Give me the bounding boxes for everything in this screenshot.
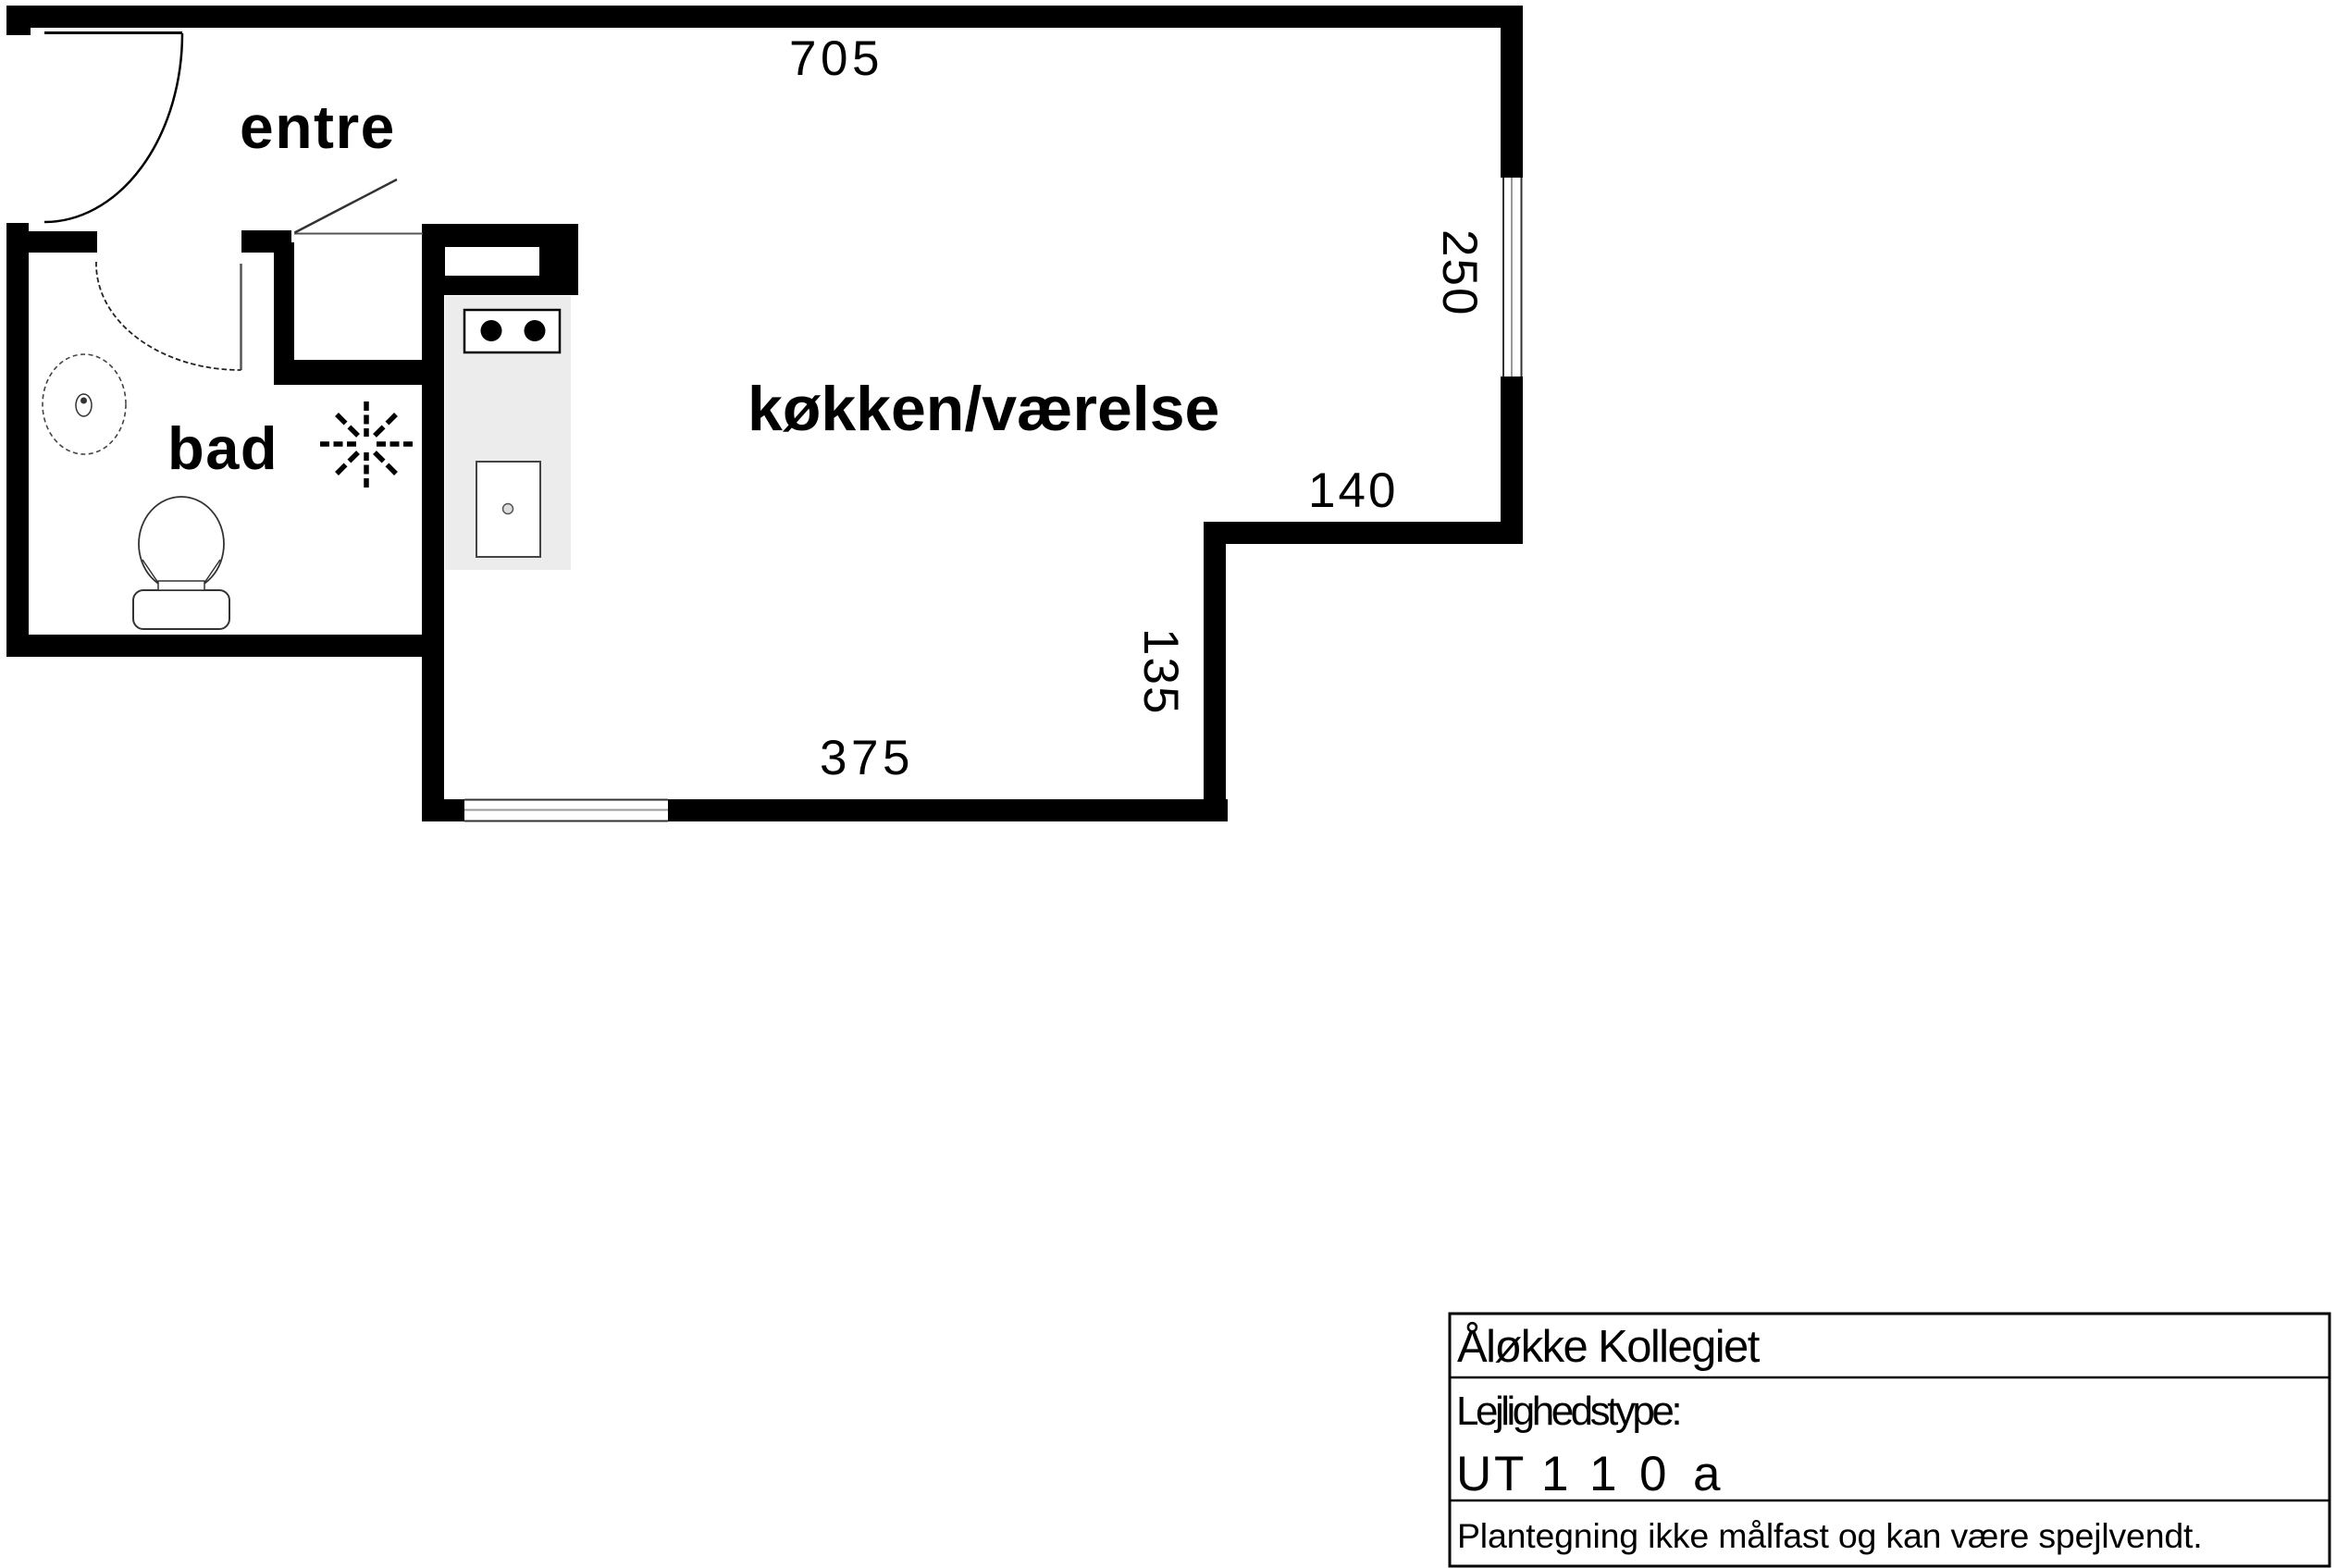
svg-text:køkken/værelse: køkken/værelse: [748, 374, 1219, 444]
svg-text:140: 140: [1308, 463, 1398, 518]
svg-text:Åløkke Kollegiet: Åløkke Kollegiet: [1457, 1322, 1761, 1372]
svg-text:Lejlighedstype:: Lejlighedstype:: [1456, 1389, 1679, 1434]
svg-text:bad: bad: [167, 414, 278, 482]
svg-text:375: 375: [820, 731, 914, 785]
svg-text:entre: entre: [240, 93, 396, 161]
svg-text:250: 250: [1432, 229, 1487, 316]
svg-text:705: 705: [789, 31, 884, 86]
svg-text:Plantegning ikke målfast og ka: Plantegning ikke målfast og kan være spe…: [1457, 1516, 2202, 1555]
svg-text:135: 135: [1133, 628, 1188, 715]
